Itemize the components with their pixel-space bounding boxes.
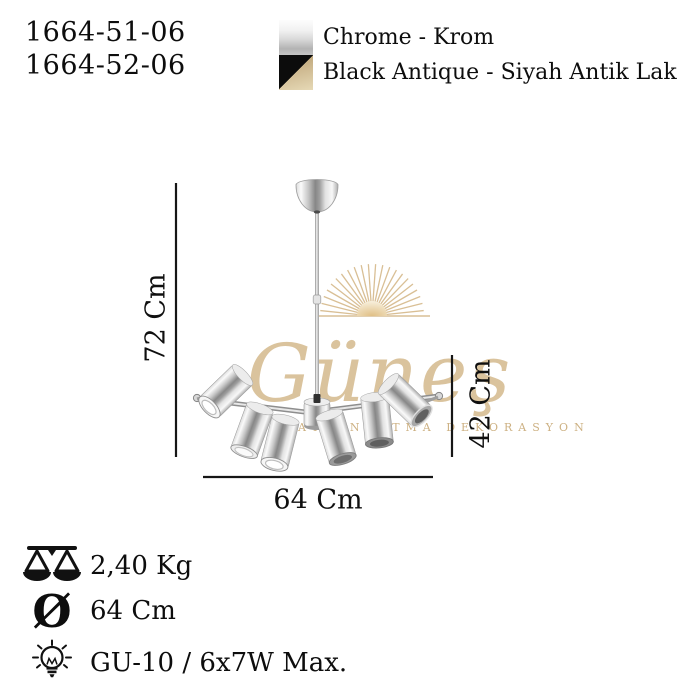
sunburst-watermark [316, 264, 430, 316]
suspension-rod [315, 210, 319, 402]
diameter-spec-row: Ø 64 Cm [20, 588, 176, 634]
product-spec-sheet: 1664-51-06 1664-52-06 Chrome - Krom Blac… [0, 0, 700, 700]
diameter-value: 64 Cm [90, 596, 176, 626]
canopy-nub [314, 210, 320, 213]
ceiling-canopy [296, 180, 338, 212]
dimension-lines [176, 183, 452, 477]
bulb-value: GU-10 / 6x7W Max. [90, 648, 347, 678]
bulb-icon [20, 638, 84, 688]
width-dimension-label: 64 Cm [273, 485, 362, 516]
height-dimension-label: 72 Cm [141, 273, 172, 362]
weight-value: 2,40 Kg [90, 551, 192, 581]
body-height-dimension-label: 42 Cm [466, 359, 497, 448]
chandelier [193, 180, 442, 474]
spotlight-4 [315, 407, 358, 469]
weight-spec-row: 2,40 Kg [20, 543, 192, 589]
rod-joint [313, 295, 321, 304]
bulb-spec-row: GU-10 / 6x7W Max. [20, 638, 347, 688]
scale-icon [20, 543, 84, 589]
diameter-icon: Ø [20, 589, 84, 634]
